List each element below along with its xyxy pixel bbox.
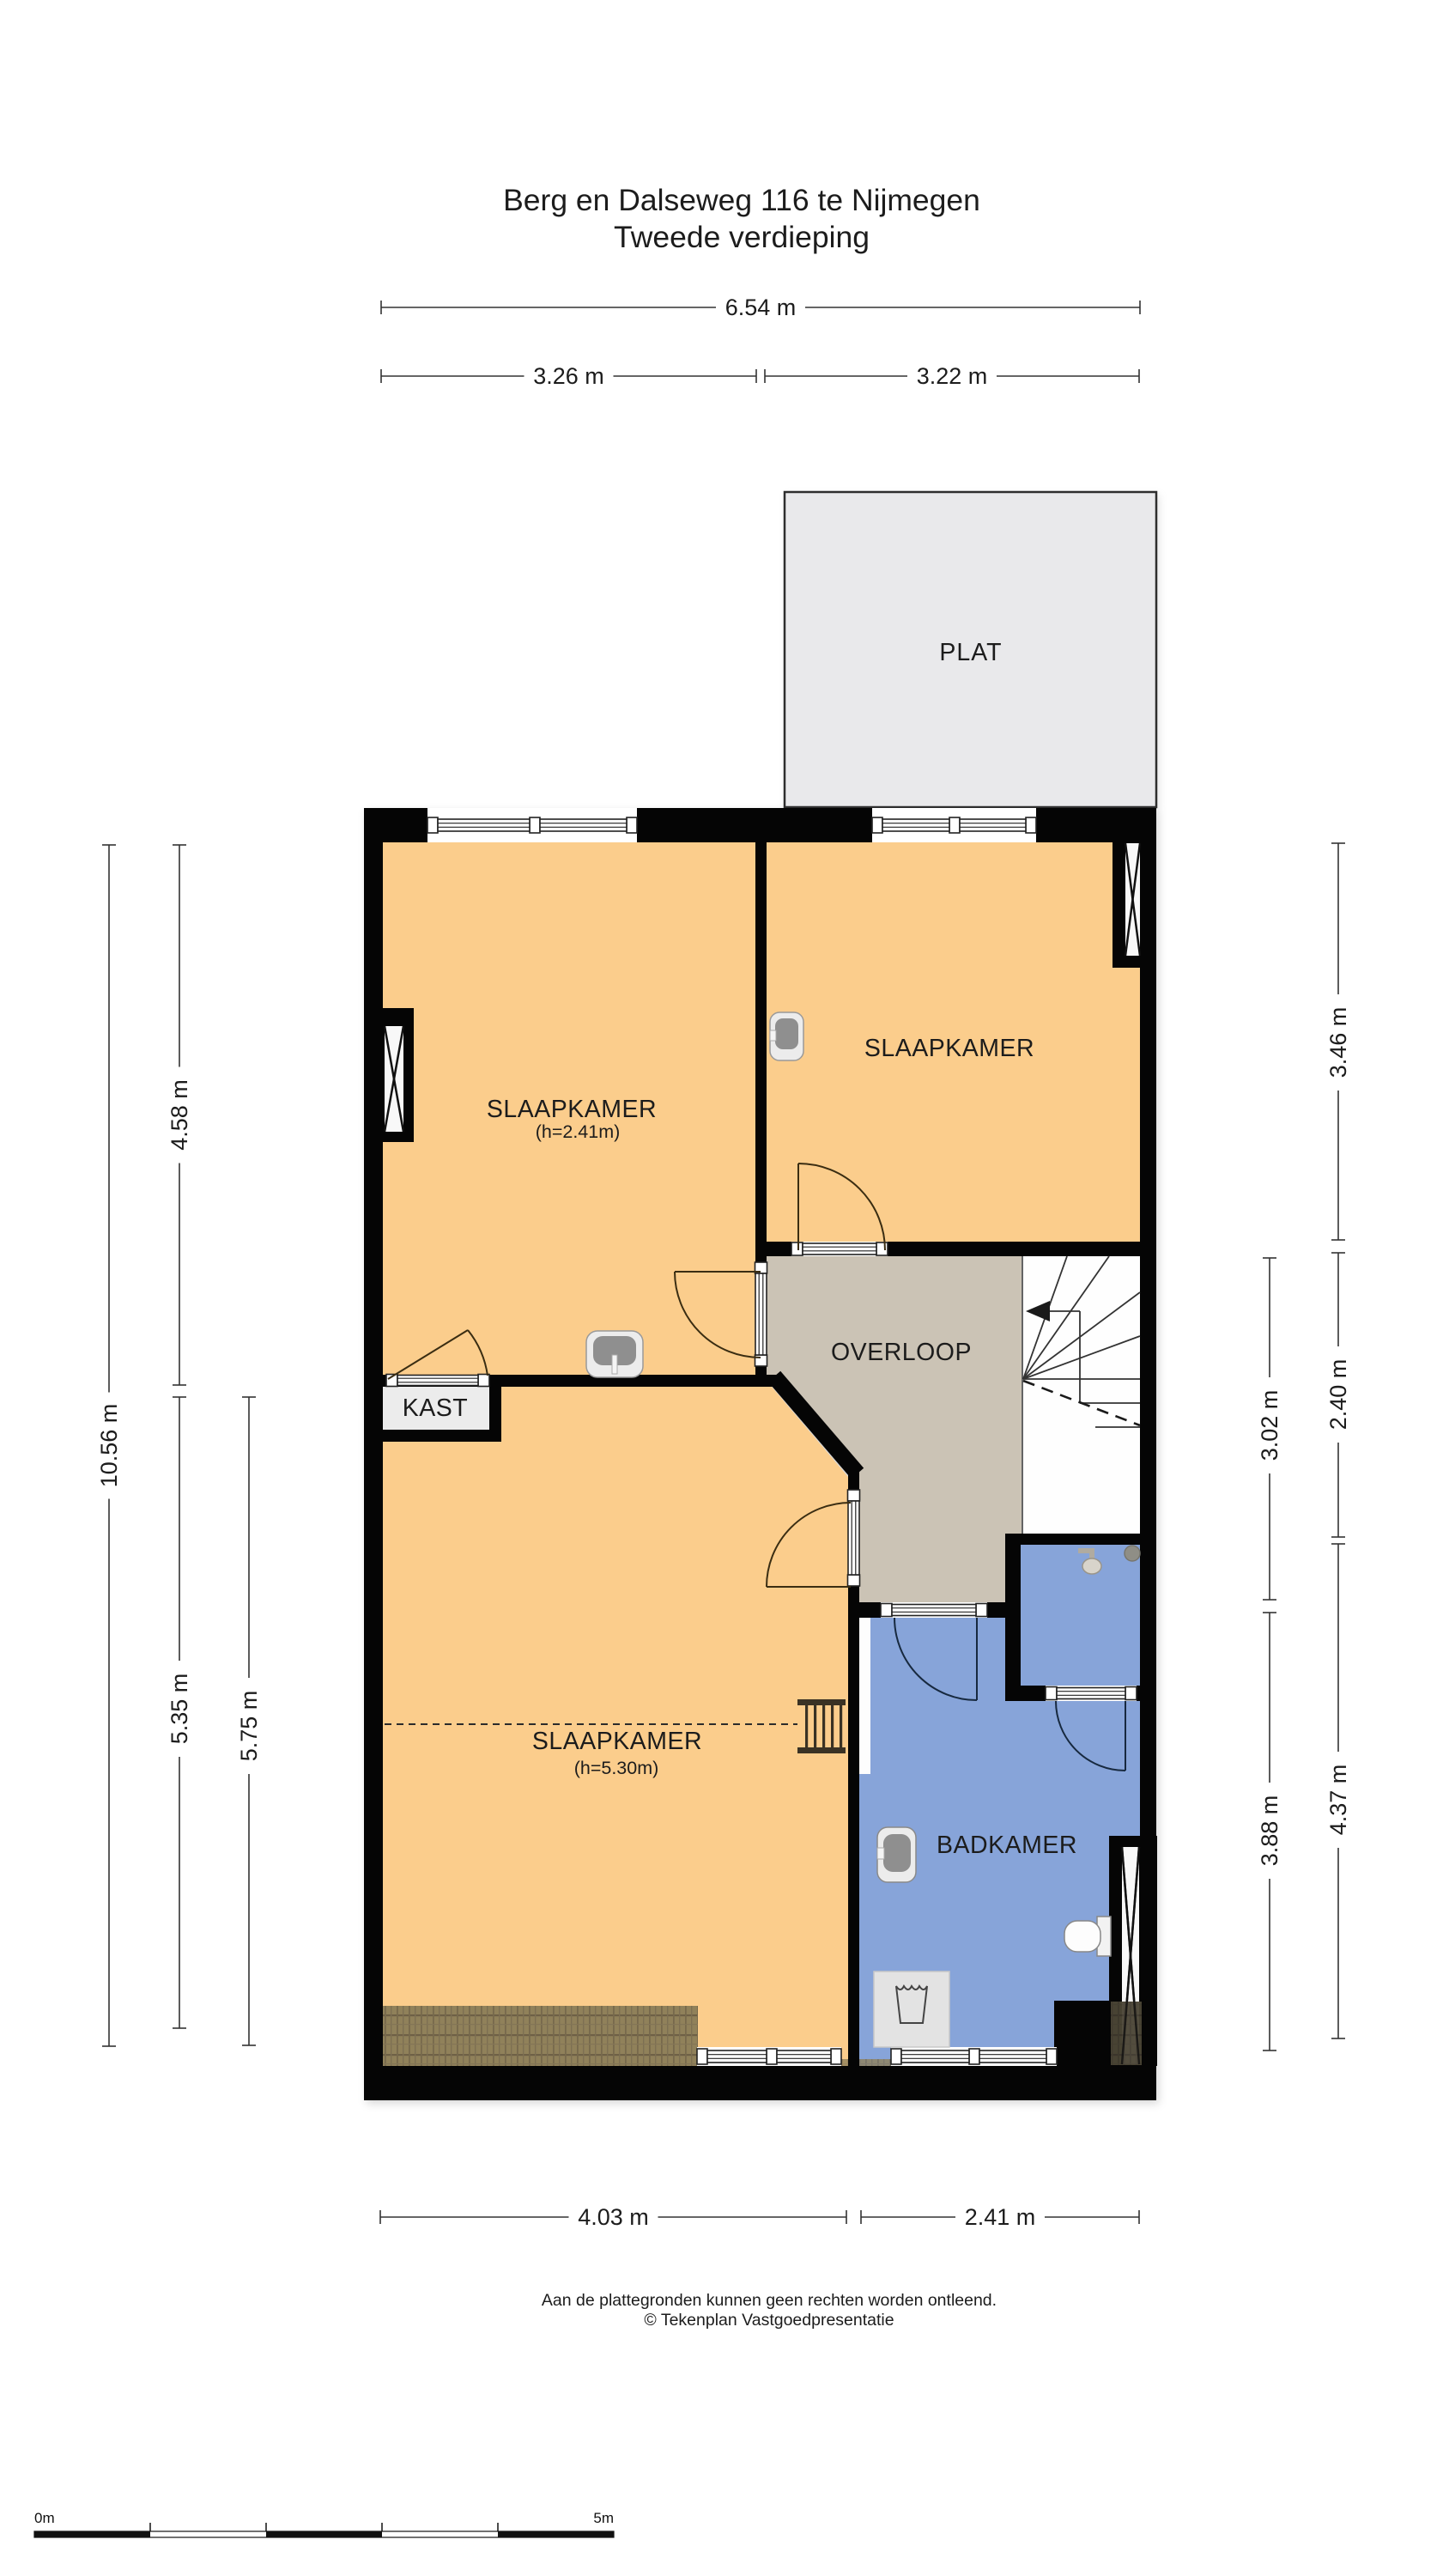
svg-text:4.58 m: 4.58 m xyxy=(167,1079,192,1151)
svg-text:Aan de plattegronden kunnen ge: Aan de plattegronden kunnen geen rechten… xyxy=(542,2291,997,2310)
svg-text:3.88 m: 3.88 m xyxy=(1257,1795,1282,1867)
svg-text:5.35 m: 5.35 m xyxy=(167,1674,192,1745)
svg-text:3.46 m: 3.46 m xyxy=(1325,1007,1351,1078)
svg-text:PLAT: PLAT xyxy=(939,639,1002,666)
svg-text:3.02 m: 3.02 m xyxy=(1257,1390,1282,1461)
svg-text:Berg en Dalseweg 116 te Nijmeg: Berg en Dalseweg 116 te Nijmegen xyxy=(503,183,980,217)
svg-text:2.41 m: 2.41 m xyxy=(965,2204,1036,2230)
svg-text:(h=2.41m): (h=2.41m) xyxy=(536,1121,621,1142)
svg-text:SLAAPKAMER: SLAAPKAMER xyxy=(532,1728,702,1755)
svg-text:© Tekenplan Vastgoedpresentati: © Tekenplan Vastgoedpresentatie xyxy=(644,2311,894,2330)
svg-text:KAST: KAST xyxy=(403,1394,468,1422)
svg-text:4.03 m: 4.03 m xyxy=(578,2204,649,2230)
svg-text:OVERLOOP: OVERLOOP xyxy=(831,1339,972,1366)
svg-text:SLAAPKAMER: SLAAPKAMER xyxy=(487,1096,657,1123)
svg-text:4.37 m: 4.37 m xyxy=(1325,1765,1351,1836)
svg-text:(h=5.30m): (h=5.30m) xyxy=(574,1758,659,1778)
svg-text:Tweede verdieping: Tweede verdieping xyxy=(614,220,870,254)
svg-text:2.40 m: 2.40 m xyxy=(1325,1359,1351,1431)
svg-text:0m: 0m xyxy=(34,2510,55,2526)
svg-text:3.26 m: 3.26 m xyxy=(533,363,604,389)
svg-text:3.22 m: 3.22 m xyxy=(917,363,988,389)
svg-text:5m: 5m xyxy=(593,2510,614,2526)
svg-text:5.75 m: 5.75 m xyxy=(236,1691,262,1762)
svg-text:SLAAPKAMER: SLAAPKAMER xyxy=(864,1035,1034,1062)
svg-text:BADKAMER: BADKAMER xyxy=(937,1832,1077,1859)
svg-text:6.54 m: 6.54 m xyxy=(725,295,797,320)
svg-text:10.56 m: 10.56 m xyxy=(96,1404,122,1488)
